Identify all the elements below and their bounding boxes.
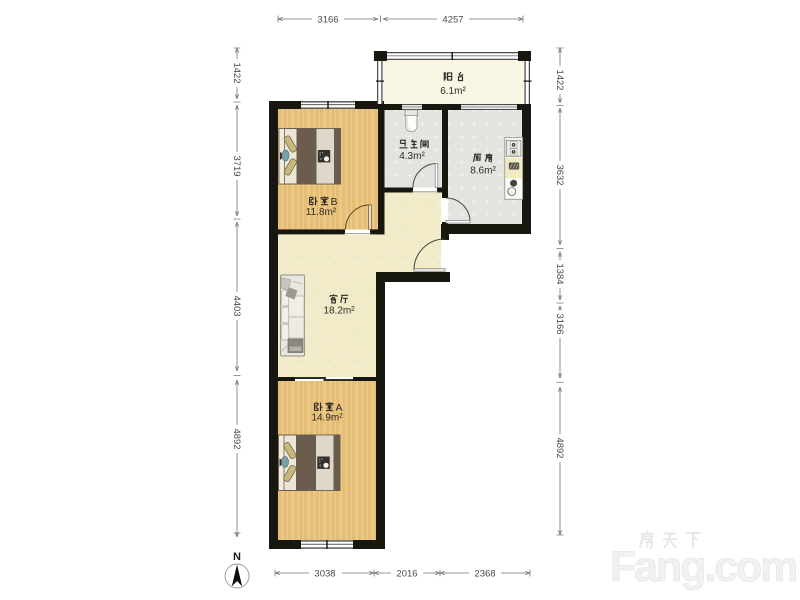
svg-text:4403: 4403 xyxy=(231,295,242,316)
svg-text:4.3m²: 4.3m² xyxy=(399,151,425,162)
svg-text:1422: 1422 xyxy=(554,69,565,90)
svg-text:Fang.com: Fang.com xyxy=(610,543,796,591)
svg-text:4257: 4257 xyxy=(442,14,463,25)
svg-text:3166: 3166 xyxy=(554,313,565,334)
svg-text:8.6m²: 8.6m² xyxy=(470,165,496,176)
svg-text:1384: 1384 xyxy=(554,263,565,284)
svg-text:6.1m²: 6.1m² xyxy=(440,86,466,97)
svg-text:14.9m²: 14.9m² xyxy=(311,412,343,423)
svg-text:2016: 2016 xyxy=(396,568,417,579)
svg-text:3166: 3166 xyxy=(317,14,338,25)
svg-text:11.8m²: 11.8m² xyxy=(306,207,337,218)
svg-text:4892: 4892 xyxy=(554,437,565,458)
svg-text:3632: 3632 xyxy=(554,164,565,185)
svg-text:4892: 4892 xyxy=(231,428,242,449)
svg-text:2368: 2368 xyxy=(474,568,495,579)
svg-text:3719: 3719 xyxy=(231,155,242,176)
svg-text:3038: 3038 xyxy=(314,568,335,579)
svg-text:18.2m²: 18.2m² xyxy=(323,305,355,316)
svg-text:N: N xyxy=(233,551,241,563)
svg-text:1422: 1422 xyxy=(231,62,242,83)
